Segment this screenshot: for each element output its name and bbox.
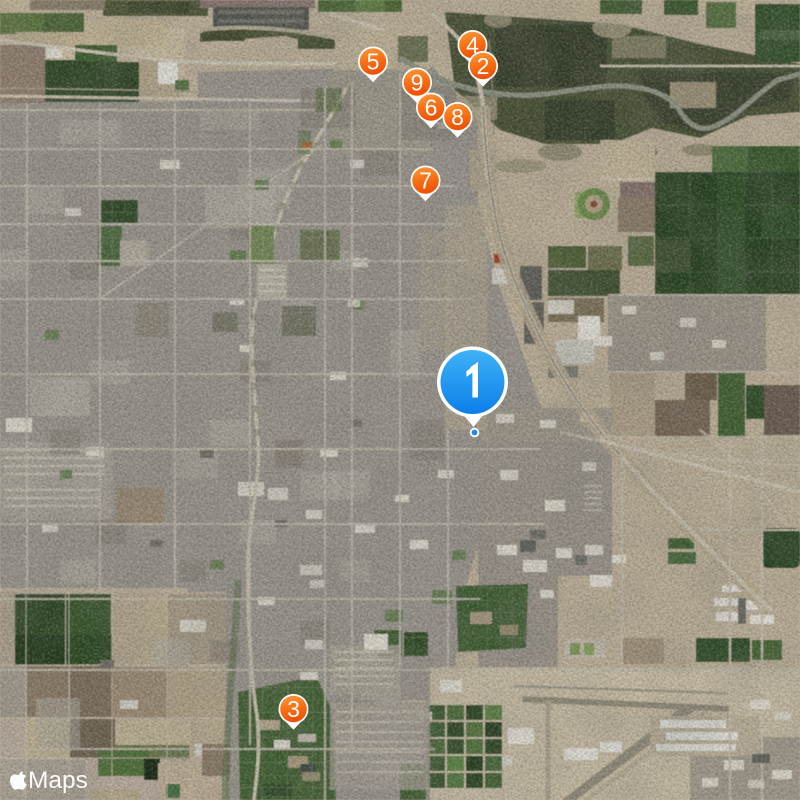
svg-text:8: 8 <box>451 104 464 130</box>
svg-text:6: 6 <box>425 95 438 121</box>
svg-text:5: 5 <box>367 49 380 75</box>
svg-text:3: 3 <box>287 696 300 722</box>
svg-text:Maps: Maps <box>28 767 88 794</box>
svg-text:7: 7 <box>419 168 432 194</box>
svg-text:2: 2 <box>477 53 490 79</box>
svg-text:9: 9 <box>411 70 424 96</box>
